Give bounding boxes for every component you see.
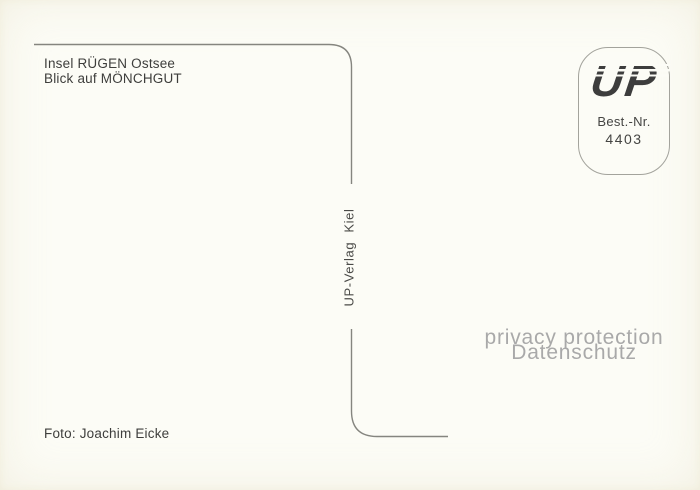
- up-logo: UP: [588, 59, 661, 103]
- order-number-label: Best.-Nr.: [579, 114, 669, 129]
- caption-line-2: Blick auf MÖNCHGUT: [44, 71, 182, 86]
- up-logo-text: UP: [587, 55, 661, 106]
- privacy-watermark: privacy protection Datenschutz: [466, 331, 682, 360]
- order-number-value: 4403: [579, 131, 669, 147]
- divider-bottom-segment: [352, 329, 449, 437]
- caption: Insel RÜGEN Ostsee Blick auf MÖNCHGUT: [44, 56, 182, 86]
- logo-stripes-decoration: [581, 64, 670, 79]
- publisher-vertical-text: UP-Verlag Kiel: [342, 178, 357, 338]
- photographer-credit: Foto: Joachim Eicke: [44, 426, 169, 441]
- caption-line-1: Insel RÜGEN Ostsee: [44, 56, 182, 71]
- stamp-box: UP Best.-Nr. 4403: [578, 47, 670, 175]
- postcard-back: Insel RÜGEN Ostsee Blick auf MÖNCHGUT UP…: [0, 0, 700, 490]
